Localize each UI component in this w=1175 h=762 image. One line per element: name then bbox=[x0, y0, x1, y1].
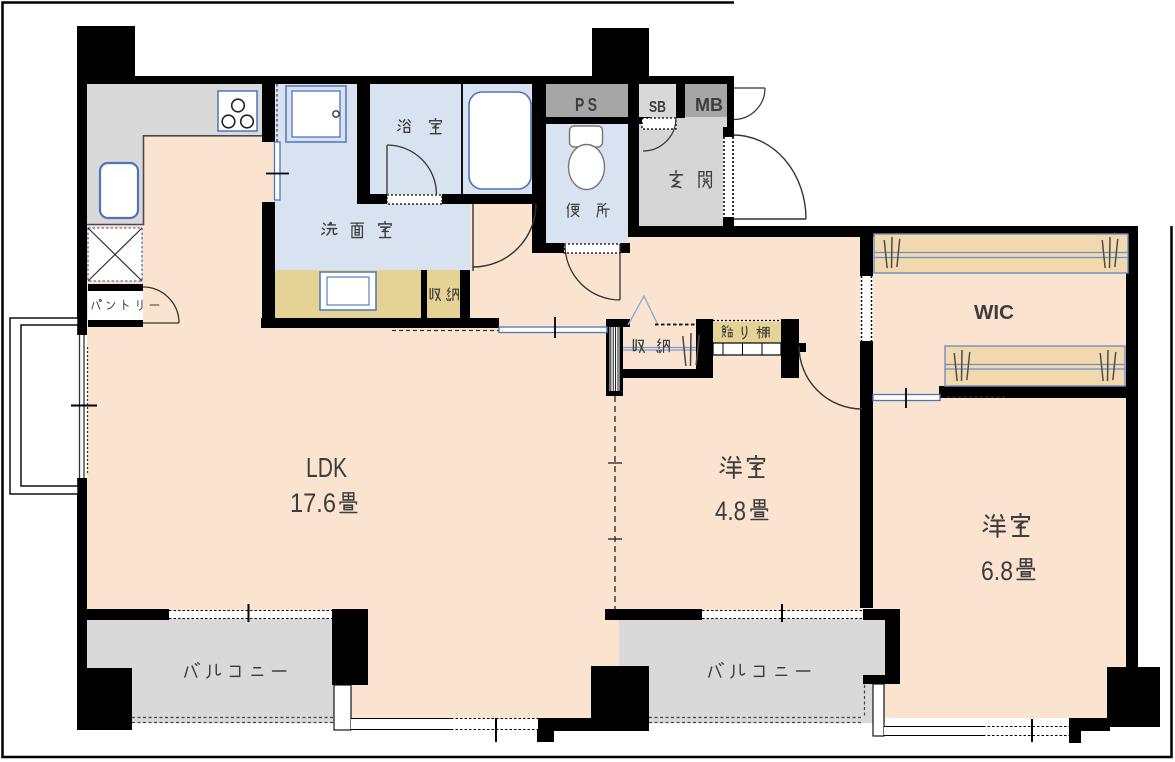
svg-text:17.6: 17.6 bbox=[290, 488, 336, 518]
svg-text:4.8: 4.8 bbox=[715, 496, 746, 526]
svg-text:LDK: LDK bbox=[306, 452, 347, 483]
svg-text:6.8: 6.8 bbox=[981, 556, 1013, 586]
svg-text:P S: P S bbox=[575, 95, 597, 115]
svg-text:MB: MB bbox=[695, 95, 723, 115]
svg-text:SB: SB bbox=[649, 99, 666, 116]
svg-text:WIC: WIC bbox=[974, 302, 1014, 324]
